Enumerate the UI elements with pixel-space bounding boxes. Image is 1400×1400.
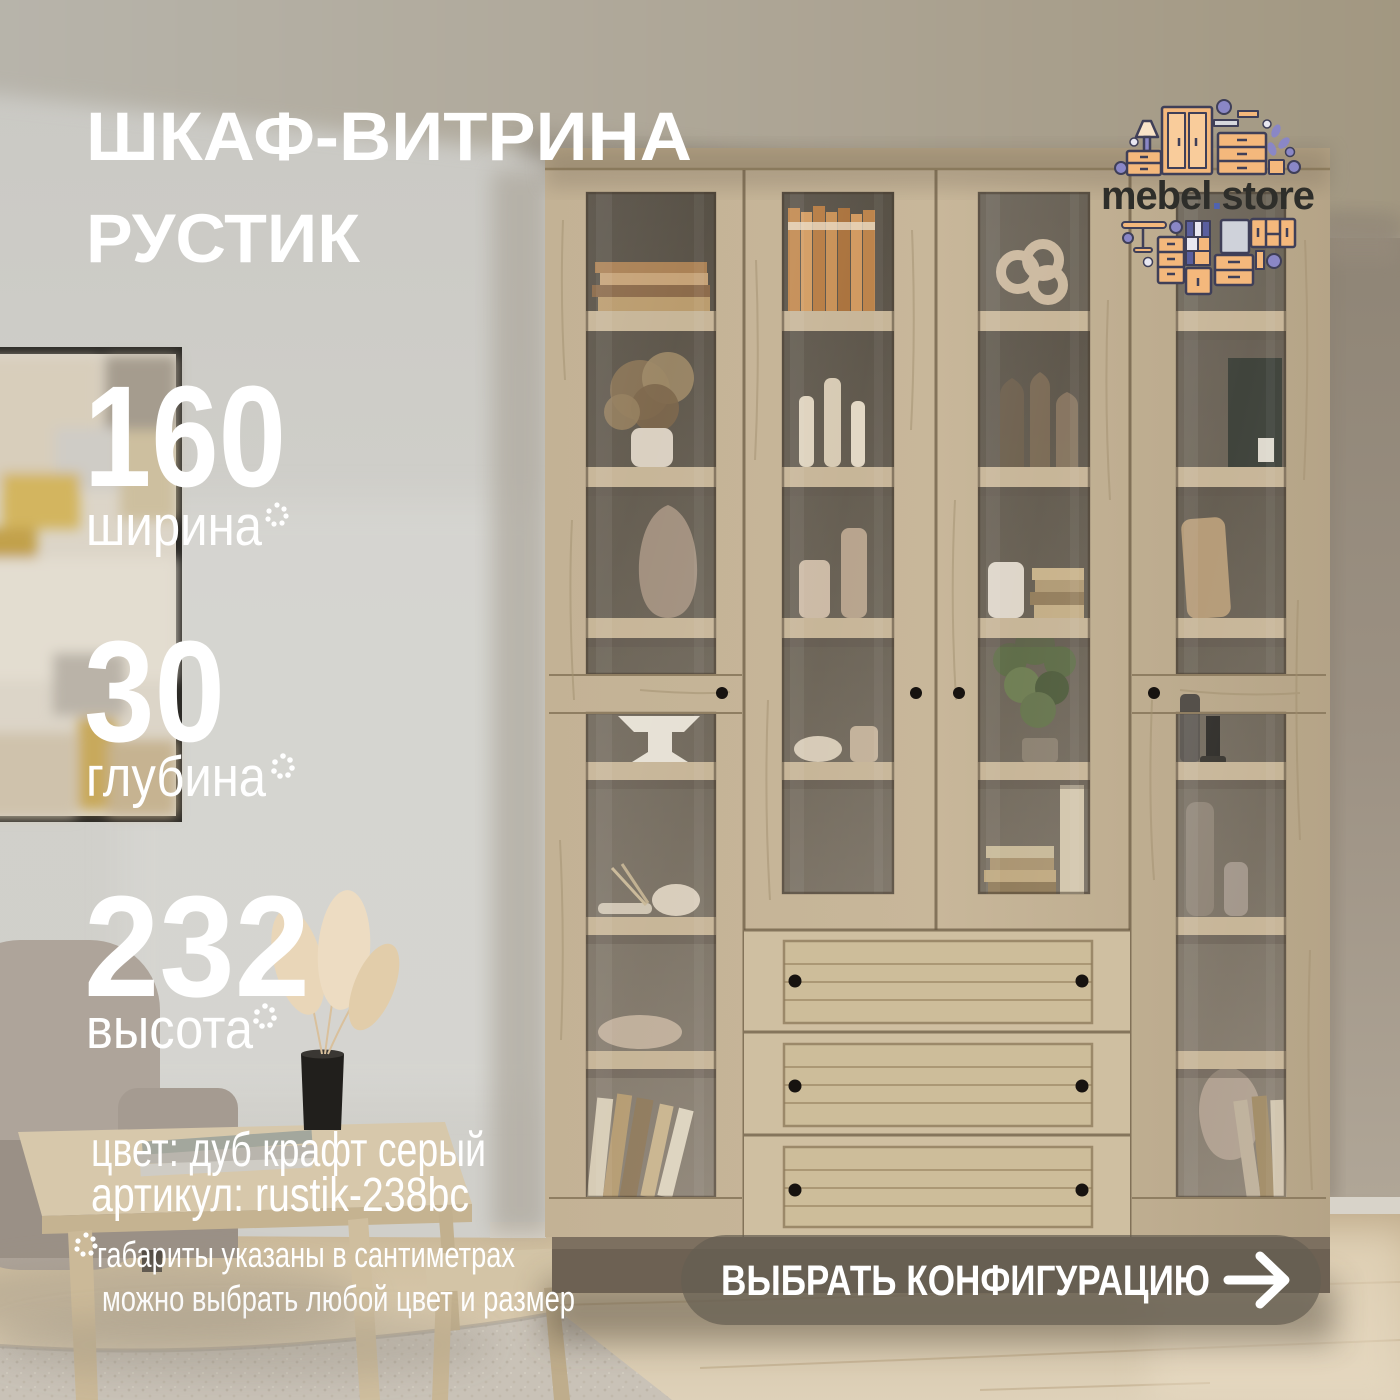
svg-text:160: 160 (84, 356, 286, 517)
svg-text:mebel.store: mebel.store (1101, 174, 1314, 218)
svg-text:ШКАФ-ВИТРИНА: ШКАФ-ВИТРИНА (86, 98, 692, 175)
svg-text:РУСТИК: РУСТИК (86, 200, 361, 277)
svg-text:ширина: ширина (86, 494, 262, 558)
svg-text:ВЫБРАТЬ КОНФИГУРАЦИЮ: ВЫБРАТЬ КОНФИГУРАЦИЮ (721, 1257, 1210, 1305)
svg-text:габариты указаны в сантиметрах: габариты указаны в сантиметрах (97, 1234, 515, 1275)
svg-text:артикул: rustik-238bc: артикул: rustik-238bc (91, 1169, 469, 1222)
svg-text:глубина: глубина (86, 745, 266, 809)
svg-text:высота: высота (86, 997, 253, 1061)
